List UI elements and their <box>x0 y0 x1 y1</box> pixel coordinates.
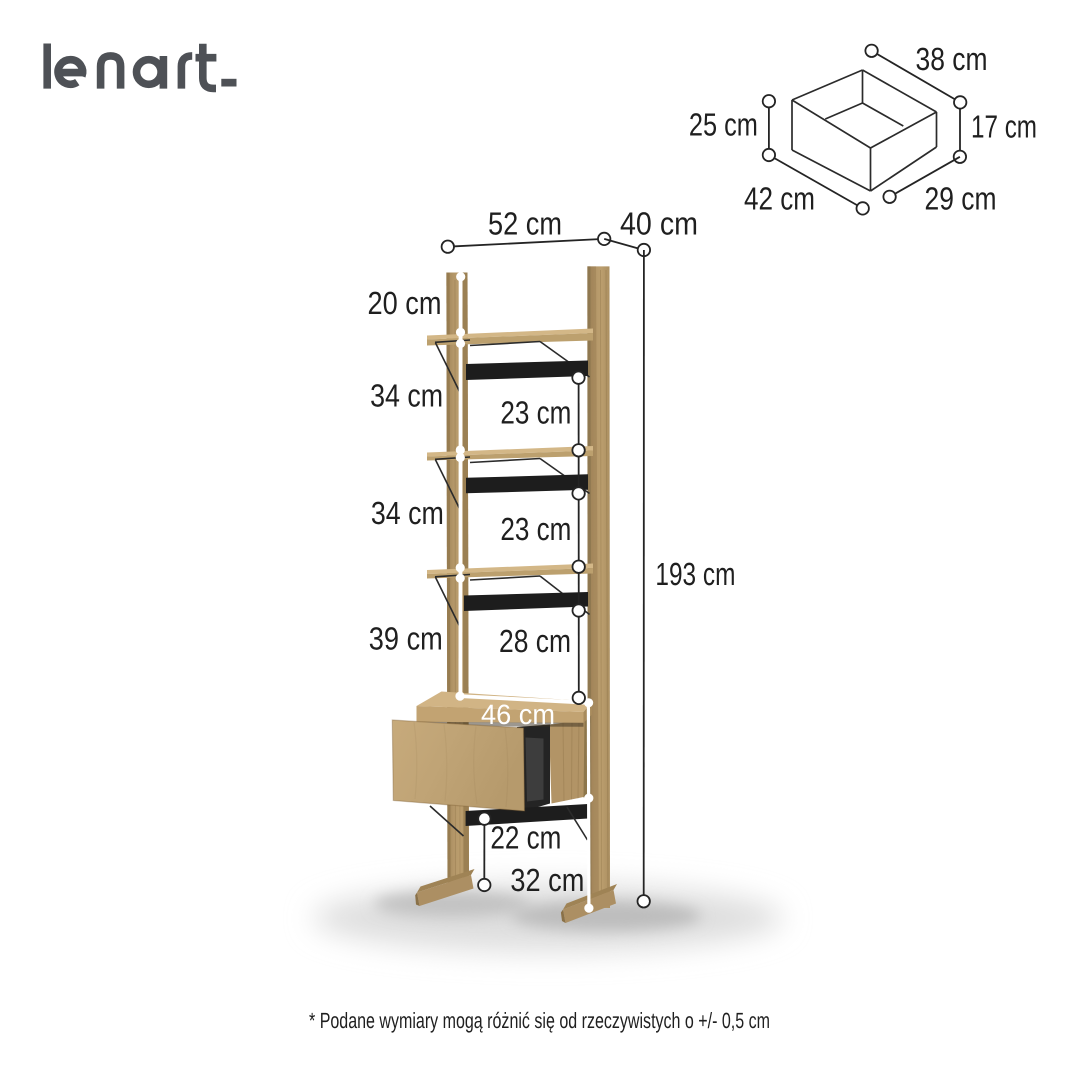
svg-text:17 cm: 17 cm <box>971 109 1037 145</box>
svg-text:20 cm: 20 cm <box>368 285 442 321</box>
svg-text:38 cm: 38 cm <box>916 41 988 77</box>
svg-text:34 cm: 34 cm <box>371 495 444 531</box>
svg-text:28 cm: 28 cm <box>499 623 571 659</box>
svg-text:32 cm: 32 cm <box>510 862 584 898</box>
svg-text:25 cm: 25 cm <box>689 106 758 142</box>
svg-text:* Podane wymiary mogą różnić s: * Podane wymiary mogą różnić się od rzec… <box>309 1008 770 1033</box>
svg-text:46 cm: 46 cm <box>481 699 555 730</box>
svg-text:22 cm: 22 cm <box>490 820 561 856</box>
svg-text:52 cm: 52 cm <box>488 206 562 242</box>
svg-text:39 cm: 39 cm <box>369 621 443 657</box>
svg-text:193 cm: 193 cm <box>655 556 735 592</box>
svg-text:40 cm: 40 cm <box>620 206 698 242</box>
svg-text:34 cm: 34 cm <box>370 377 443 413</box>
svg-text:42 cm: 42 cm <box>744 181 815 217</box>
svg-text:23 cm: 23 cm <box>500 511 571 547</box>
svg-text:29 cm: 29 cm <box>925 181 997 217</box>
svg-text:23 cm: 23 cm <box>500 395 571 431</box>
